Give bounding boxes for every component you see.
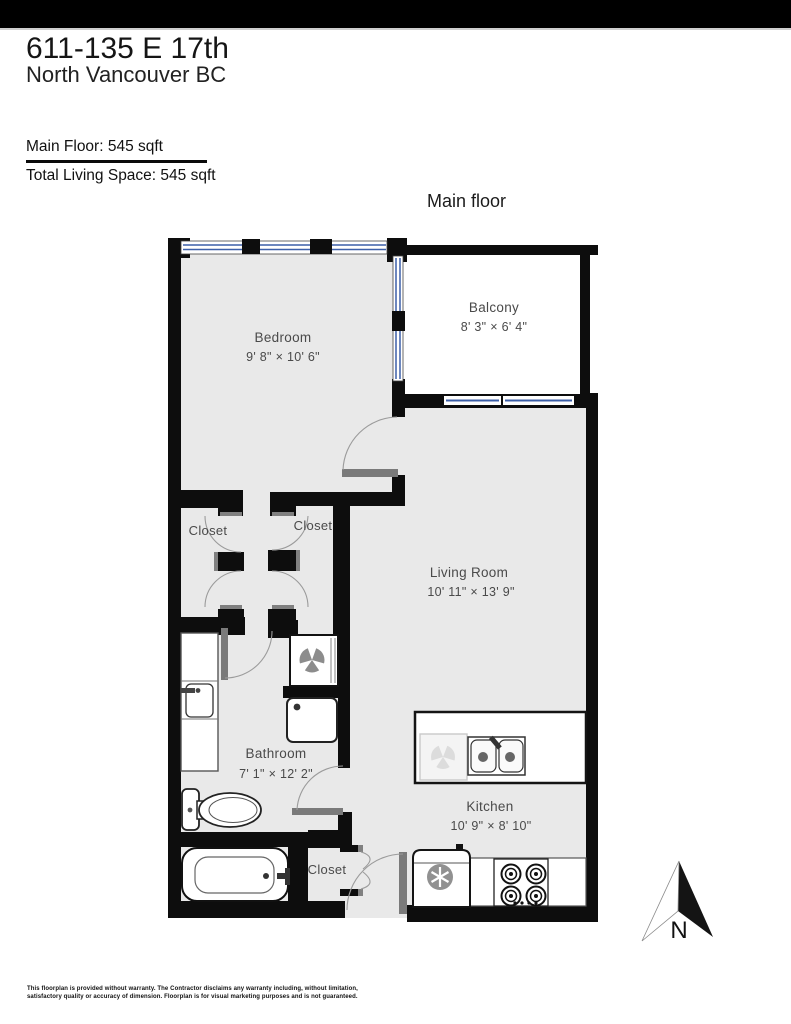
bathroom-dims: 7' 1" × 12' 2" bbox=[239, 767, 313, 781]
bedroom-label: Bedroom bbox=[255, 330, 312, 345]
closet-right-label: Closet bbox=[294, 518, 333, 533]
bedroom-dims: 9' 8" × 10' 6" bbox=[246, 350, 320, 364]
bathroom-vanity bbox=[181, 633, 218, 771]
fridge bbox=[413, 844, 470, 907]
kitchen-peninsula bbox=[415, 712, 586, 783]
balcony-dims: 8' 3" × 6' 4" bbox=[461, 320, 528, 334]
living-room-dims: 10' 11" × 13' 9" bbox=[427, 585, 514, 599]
balcony-label: Balcony bbox=[469, 300, 519, 315]
disclaimer-line1: This floorplan is provided without warra… bbox=[27, 986, 358, 992]
north-arrow-icon: N bbox=[642, 861, 713, 944]
kitchen-label: Kitchen bbox=[466, 799, 513, 814]
kitchen-sink bbox=[468, 736, 525, 775]
bathroom-entry-door-leaf bbox=[292, 808, 343, 815]
kitchen-dims: 10' 9" × 8' 10" bbox=[450, 819, 531, 833]
tub-drain bbox=[263, 873, 269, 879]
floor-plan-drawing: Bedroom 9' 8" × 10' 6" Balcony 8' 3" × 6… bbox=[0, 0, 791, 1024]
north-label: N bbox=[670, 917, 687, 944]
dishwasher bbox=[420, 734, 467, 780]
stove bbox=[494, 859, 548, 906]
shower bbox=[287, 698, 337, 742]
shower-drain bbox=[294, 704, 301, 711]
closet-entry-label: Closet bbox=[308, 862, 347, 877]
bathroom-faucet bbox=[181, 688, 195, 693]
living-room-door-leaf bbox=[342, 469, 398, 477]
entry-door-leaf bbox=[399, 852, 407, 914]
floorplan-page: 611-135 E 17th North Vancouver BC Main F… bbox=[0, 0, 791, 1024]
bathtub bbox=[182, 848, 290, 901]
living-room-label: Living Room bbox=[430, 565, 508, 580]
closet-left-label: Closet bbox=[189, 523, 228, 538]
bathroom-hall-door-leaf bbox=[221, 628, 228, 680]
disclaimer-line2: satisfactory quality or accuracy of dime… bbox=[27, 994, 358, 1000]
bathroom-label: Bathroom bbox=[246, 746, 307, 761]
washer-dryer bbox=[290, 635, 338, 686]
